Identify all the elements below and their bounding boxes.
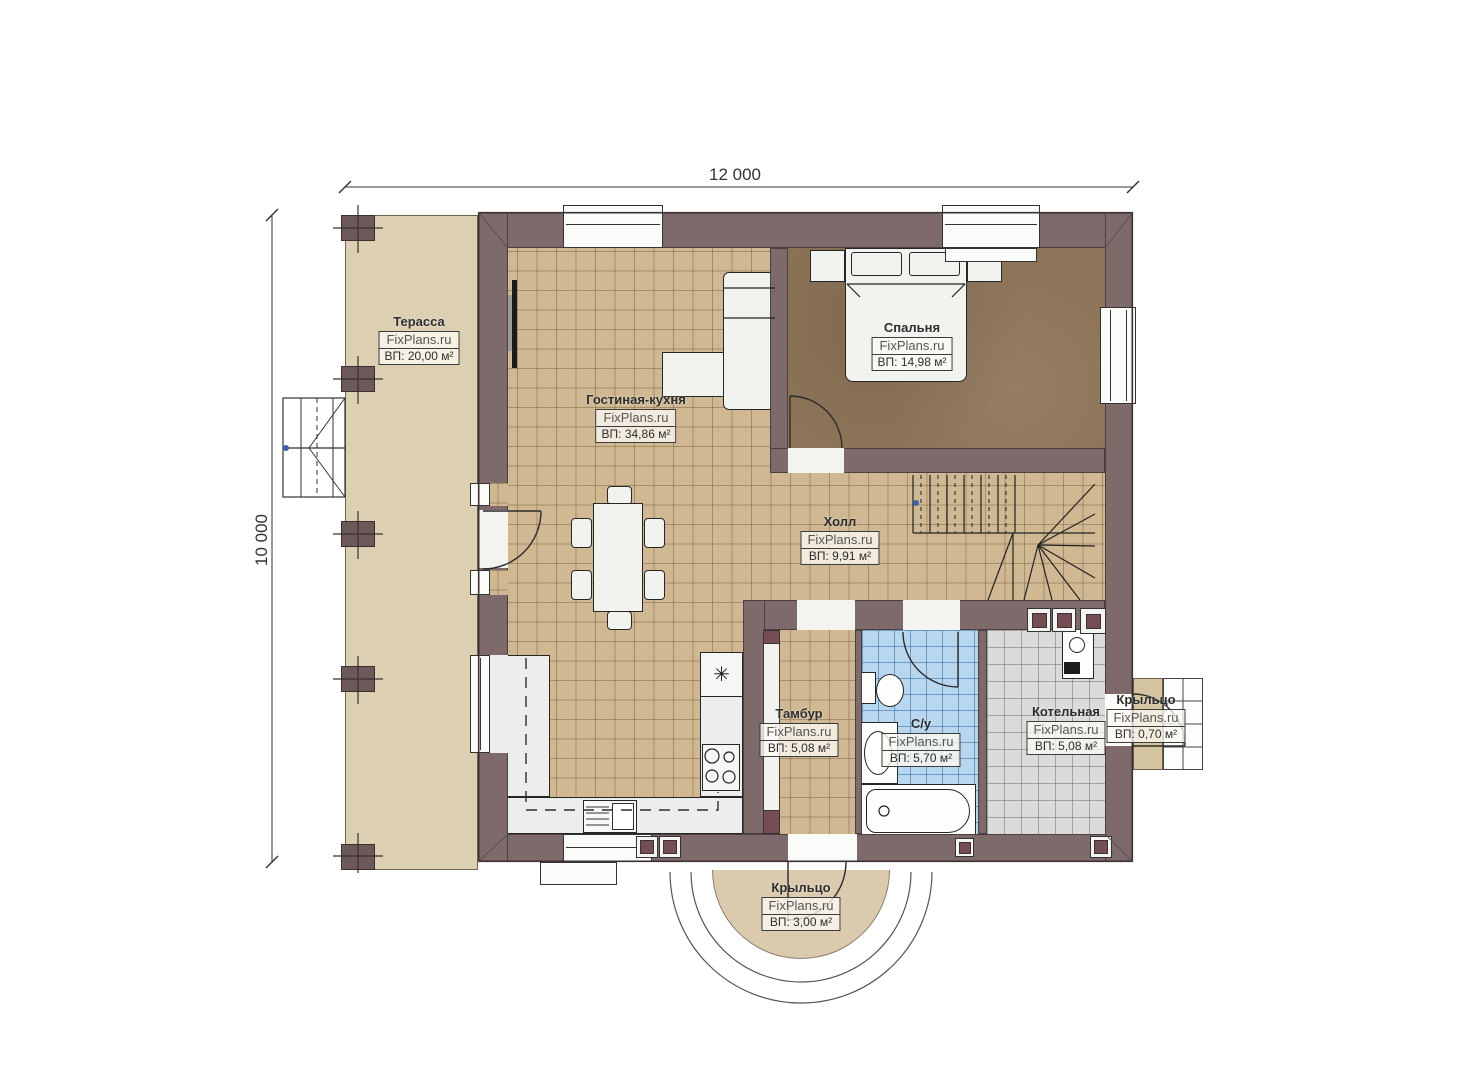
watermark: FixPlans.ru — [762, 898, 839, 915]
door-opening-bedroom — [788, 448, 844, 473]
room-label-terrace: Терасса FixPlans.ru ВП: 20,00 м² — [379, 314, 460, 365]
exterior-ledge — [540, 862, 617, 885]
room-label-bedroom: Спальня FixPlans.ru ВП: 14,98 м² — [872, 320, 953, 371]
door-opening-entrance — [788, 834, 857, 862]
partition-block — [763, 630, 780, 644]
partition-block — [763, 810, 780, 834]
window-frame-line — [1110, 310, 1111, 401]
room-name: Холл — [824, 514, 857, 529]
room-area: ВП: 5,08 м² — [760, 741, 837, 756]
watermark: FixPlans.ru — [801, 532, 878, 549]
room-label-living-kitchen: Гостиная-кухня FixPlans.ru ВП: 34,86 м² — [586, 392, 686, 443]
room-label-bathroom: С/у FixPlans.ru ВП: 5,70 м² — [881, 716, 960, 767]
room-name: Крыльцо — [1116, 692, 1175, 707]
terrace-post — [341, 366, 375, 392]
room-name: С/у — [911, 716, 931, 731]
kitchen-sink-basin — [612, 803, 634, 830]
bathtub-inner — [866, 789, 970, 833]
window-frame-line — [945, 224, 1037, 225]
window-frame-line — [480, 658, 481, 750]
floor-plan-canvas: ✳ — [0, 0, 1473, 1080]
tv-shelf — [508, 295, 512, 351]
watermark: FixPlans.ru — [760, 724, 837, 741]
room-area: ВП: 3,00 м² — [762, 915, 839, 930]
pilaster — [659, 836, 681, 858]
window-bedroom-right — [1100, 307, 1136, 404]
room-label-side-porch: Крыльцо FixPlans.ru ВП: 0,70 м² — [1106, 692, 1185, 743]
tv — [512, 280, 517, 368]
toilet-bowl — [876, 674, 904, 707]
room-label-front-porch: Крыльцо FixPlans.ru ВП: 3,00 м² — [761, 880, 840, 931]
room-area: ВП: 0,70 м² — [1107, 727, 1184, 742]
pilaster — [1090, 836, 1112, 858]
window-frame-line — [566, 224, 660, 225]
fridge-symbol: ✳ — [713, 662, 730, 687]
dining-chair — [644, 518, 665, 548]
terrace-post — [341, 215, 375, 241]
wall-tambour-bath — [855, 630, 862, 834]
watermark: FixPlans.ru — [1027, 722, 1104, 739]
door-opening-bathroom — [903, 600, 960, 630]
watermark: FixPlans.ru — [1107, 710, 1184, 727]
sofa — [723, 272, 775, 410]
dining-table — [593, 503, 643, 612]
watermark: FixPlans.ru — [882, 734, 959, 751]
room-name: Крыльцо — [771, 880, 830, 895]
room-label-tambour: Тамбур FixPlans.ru ВП: 5,08 м² — [759, 706, 838, 757]
door-opening-terrace — [478, 510, 508, 568]
room-area: ВП: 34,86 м² — [597, 427, 676, 442]
room-area: ВП: 14,98 м² — [873, 355, 952, 370]
room-name: Гостиная-кухня — [586, 392, 686, 407]
watermark: FixPlans.ru — [597, 410, 676, 427]
terrace-post — [341, 844, 375, 870]
dimension-height: 10 000 — [252, 514, 272, 566]
terrace-post — [341, 521, 375, 547]
pillow — [851, 252, 902, 276]
dining-chair — [571, 518, 592, 548]
watermark: FixPlans.ru — [873, 338, 952, 355]
wall-living-bedroom — [770, 248, 788, 473]
dimension-width: 12 000 — [709, 165, 761, 185]
boiler-counter-block — [1052, 608, 1076, 632]
terrace-stairs — [283, 398, 345, 497]
marker-dot — [283, 445, 289, 451]
toilet-tank — [860, 672, 876, 704]
dining-chair — [644, 570, 665, 600]
watermark: FixPlans.ru — [380, 332, 459, 349]
boiler-dial — [1069, 637, 1085, 653]
boiler-counter-block — [1080, 608, 1106, 634]
window-living-left-upper — [470, 483, 490, 506]
window-living-left-lower — [470, 570, 490, 595]
pilaster — [955, 838, 974, 857]
room-area: ВП: 5,70 м² — [882, 751, 959, 766]
dining-chair — [607, 611, 632, 630]
window-bedroom-top — [942, 205, 1040, 248]
wall-bath-boiler — [978, 630, 987, 834]
dining-chair — [571, 570, 592, 600]
room-area: ВП: 20,00 м² — [380, 349, 459, 364]
window-sill-bedroom — [945, 248, 1037, 262]
room-area: ВП: 9,91 м² — [801, 549, 878, 564]
room-name: Котельная — [1032, 704, 1100, 719]
room-label-boiler: Котельная FixPlans.ru ВП: 5,08 м² — [1026, 704, 1105, 755]
nightstand — [810, 250, 845, 282]
room-label-hall: Холл FixPlans.ru ВП: 9,91 м² — [800, 514, 879, 565]
boiler-counter-block — [1027, 608, 1051, 632]
window-living-top — [563, 205, 663, 248]
stove — [702, 744, 740, 791]
terrace-post — [341, 666, 375, 692]
pilaster — [636, 836, 658, 858]
room-name: Тамбур — [775, 706, 822, 721]
window-frame-line — [1126, 310, 1127, 401]
fridge: ✳ — [700, 652, 743, 697]
room-name: Спальня — [884, 320, 940, 335]
room-name: Терасса — [393, 314, 445, 329]
door-opening-tambour — [797, 600, 855, 630]
room-area: ВП: 5,08 м² — [1027, 739, 1104, 754]
boiler-vent — [1064, 662, 1080, 674]
